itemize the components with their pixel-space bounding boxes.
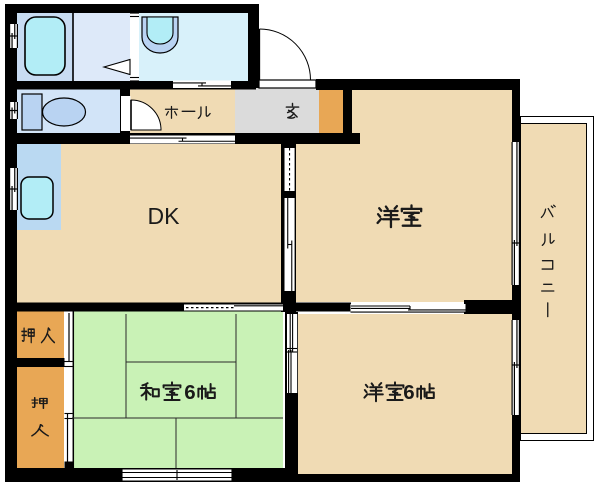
svg-text:DK: DK [148,203,181,229]
svg-text:6: 6 [184,381,195,404]
svg-text:6: 6 [403,381,414,404]
